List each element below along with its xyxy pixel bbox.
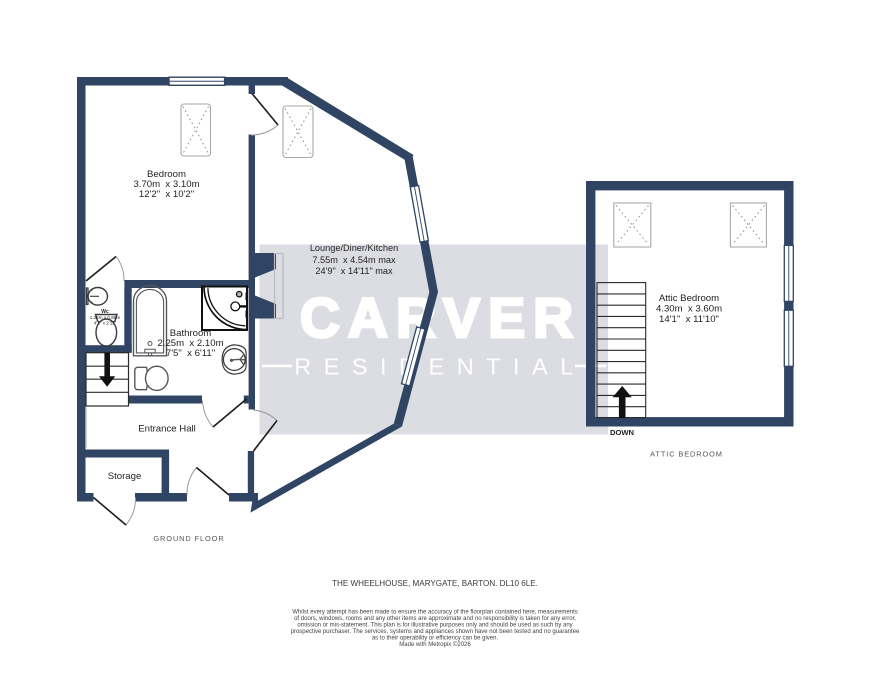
svg-text:RESIDENTIAL: RESIDENTIAL [294,354,586,380]
svg-text:14'1" x 11'10": 14'1" x 11'10" [659,314,719,325]
svg-text:1.25m x 0.88m: 1.25m x 0.88m [90,315,121,320]
svg-text:7'5" x 6'11": 7'5" x 6'11" [166,348,215,359]
svg-text:DOWN: DOWN [610,428,634,437]
svg-text:4.30m x 3.60m: 4.30m x 3.60m [656,304,722,315]
svg-text:of doors, windows, rooms and a: of doors, windows, rooms and any other i… [294,616,576,622]
svg-text:12'2" x 10'2": 12'2" x 10'2" [139,189,194,200]
svg-text:as to their operability or eff: as to their operability or efficiency ca… [372,636,499,642]
svg-text:Storage: Storage [108,471,142,482]
svg-text:24'9" x 14'11" max: 24'9" x 14'11" max [315,266,393,276]
svg-text:prospective purchaser. The ser: prospective purchaser. The services, sys… [291,629,580,635]
svg-text:omission or mis-statement. Thi: omission or mis-statement. This plan is … [297,623,572,629]
svg-text:Attic Bedroom: Attic Bedroom [659,293,719,304]
svg-text:GROUND FLOOR: GROUND FLOOR [153,534,224,543]
svg-text:Whilst every attempt has been: Whilst every attempt has been made to en… [292,610,578,616]
svg-text:Made with Metropix ©2026: Made with Metropix ©2026 [399,641,471,648]
svg-text:Entrance Hall: Entrance Hall [138,424,196,435]
svg-text:CARVER: CARVER [300,287,581,349]
svg-text:7.55m x 4.54m max: 7.55m x 4.54m max [312,255,396,265]
svg-text:Lounge/Diner/Kitchen: Lounge/Diner/Kitchen [310,243,398,253]
svg-text:THE WHEELHOUSE, MARYGATE, BART: THE WHEELHOUSE, MARYGATE, BARTON. DL10 6… [332,579,538,588]
svg-text:4'1" x 2'11": 4'1" x 2'11" [94,321,117,326]
svg-text:ATTIC BEDROOM: ATTIC BEDROOM [650,450,723,459]
